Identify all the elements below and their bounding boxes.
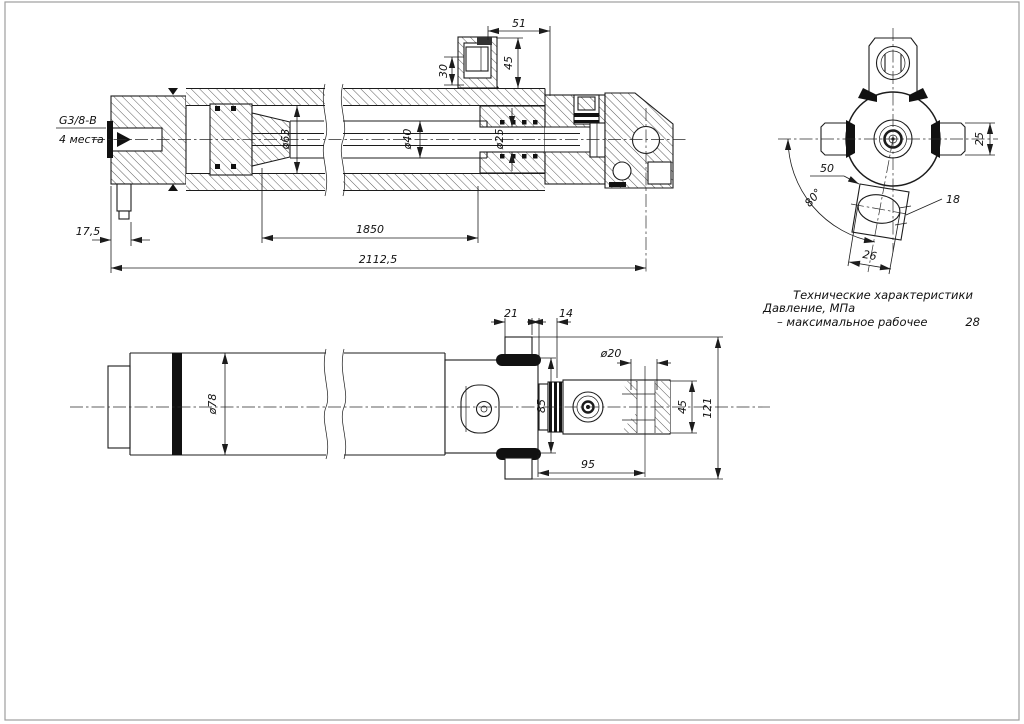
specs-pressure-label: Давление, МПа xyxy=(762,301,855,315)
dim-stroke-length: 1850 xyxy=(356,223,384,236)
specs-pressure-row-value: 28 xyxy=(965,315,980,329)
specs-title: Технические характеристики xyxy=(793,288,973,302)
dim-lug-angle: 80° xyxy=(802,186,824,209)
tube-bottom-wall xyxy=(186,174,325,191)
port-thread-label: G3/8-B xyxy=(59,114,97,127)
port-plug-cap xyxy=(477,37,492,45)
dim-boss-width: 51 xyxy=(512,17,526,30)
dim-body-dia: ø78 xyxy=(206,394,219,416)
dim-slot-width: 26 xyxy=(862,248,878,263)
end-view: 25 50 80° 18 26 xyxy=(778,28,998,274)
dim-lug-thickness: 18 xyxy=(946,193,960,206)
tube-top-wall xyxy=(186,89,325,106)
dim-overall-height: 121 xyxy=(701,398,714,419)
side-view: 21 14 ø20 ø78 85 45 121 xyxy=(70,307,770,479)
dim-bore: ø63 xyxy=(279,129,292,151)
side-pin-bottom xyxy=(505,458,532,479)
tech-specs-block: Технические характеристики Давление, МПа… xyxy=(762,288,980,329)
main-section-view: 51 30 45 ø63 ø40 ø25 17,5 1850 xyxy=(56,17,688,273)
specs-pressure-row-label: – максимальное рабочее xyxy=(777,315,927,329)
dim-fitting-depth: 30 xyxy=(437,64,450,78)
dim-lug-offset: 17,5 xyxy=(76,225,101,238)
side-weld-band xyxy=(172,353,182,455)
break-line xyxy=(324,349,327,459)
dim-boss-height: 45 xyxy=(502,56,515,70)
dim-pin-width: 21 xyxy=(504,307,518,320)
dim-eye-height: 45 xyxy=(676,400,689,414)
side-port-boss xyxy=(461,385,499,433)
rod-nut xyxy=(590,123,605,157)
mount-lug xyxy=(117,184,131,211)
dim-lug-offset: 50 xyxy=(820,162,834,175)
dim-eye-center-dist: 95 xyxy=(581,458,595,471)
port-places-label: 4 места xyxy=(59,133,104,146)
dim-eye-hole: ø20 xyxy=(600,347,622,360)
weld-mark xyxy=(168,88,178,95)
dim-rod: ø40 xyxy=(401,129,414,151)
dim-head-height: 85 xyxy=(535,399,548,413)
dim-rod-end: ø25 xyxy=(493,129,506,151)
dim-collar-width: 14 xyxy=(559,307,573,320)
dim-pin-height: 25 xyxy=(973,132,986,146)
engineering-drawing-canvas: 51 30 45 ø63 ø40 ø25 17,5 1850 xyxy=(0,0,1024,724)
dim-overall-length: 2112,5 xyxy=(359,253,398,266)
